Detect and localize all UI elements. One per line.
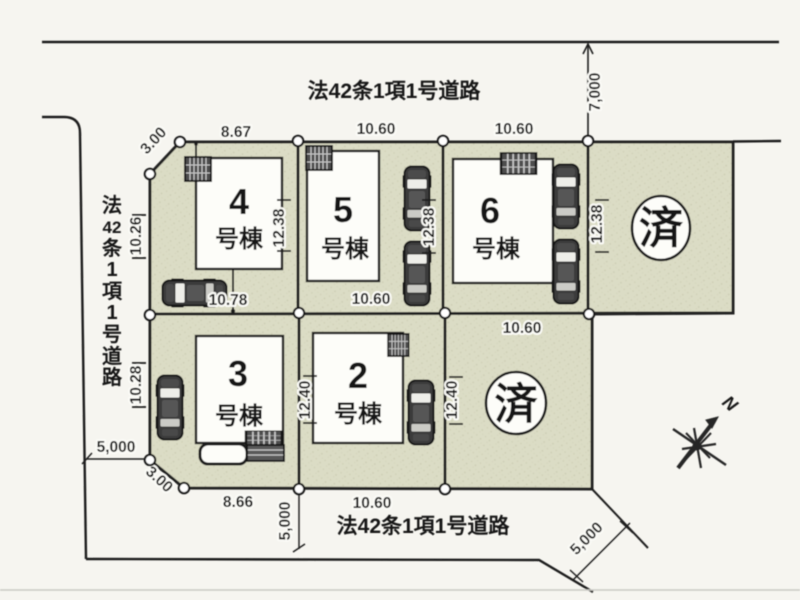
svg-text:8.66: 8.66 xyxy=(223,494,254,511)
svg-text:10.60: 10.60 xyxy=(353,495,392,512)
svg-text:8.67: 8.67 xyxy=(221,124,251,141)
svg-text:号棟: 号棟 xyxy=(215,226,264,253)
svg-text:12.38: 12.38 xyxy=(271,208,288,247)
svg-text:済: 済 xyxy=(639,204,684,253)
svg-text:条: 条 xyxy=(102,236,123,260)
svg-text:3: 3 xyxy=(228,353,248,394)
svg-text:号棟: 号棟 xyxy=(321,236,370,263)
svg-text:10.78: 10.78 xyxy=(209,292,248,309)
svg-text:10.60: 10.60 xyxy=(503,320,542,337)
svg-text:12.38: 12.38 xyxy=(421,207,438,246)
svg-text:号棟: 号棟 xyxy=(215,403,264,430)
svg-text:10.28: 10.28 xyxy=(128,365,145,404)
svg-text:路: 路 xyxy=(102,365,123,389)
svg-text:6: 6 xyxy=(480,190,500,231)
svg-text:1: 1 xyxy=(106,259,117,281)
svg-text:10.60: 10.60 xyxy=(352,291,391,308)
svg-text:10.26: 10.26 xyxy=(128,216,145,255)
svg-text:5: 5 xyxy=(333,189,353,230)
svg-text:5,000: 5,000 xyxy=(277,502,294,541)
svg-text:1: 1 xyxy=(106,302,117,324)
svg-text:12.38: 12.38 xyxy=(589,204,606,243)
svg-text:号棟: 号棟 xyxy=(472,236,521,263)
svg-text:7,000: 7,000 xyxy=(587,73,604,112)
svg-text:項: 項 xyxy=(102,281,123,303)
svg-text:12.40: 12.40 xyxy=(297,381,314,420)
svg-text:10.60: 10.60 xyxy=(495,121,534,138)
svg-text:10.60: 10.60 xyxy=(357,121,396,138)
svg-text:42: 42 xyxy=(103,218,122,237)
svg-text:5,000: 5,000 xyxy=(97,439,136,456)
svg-text:号: 号 xyxy=(102,323,122,346)
svg-text:号棟: 号棟 xyxy=(334,401,383,428)
svg-text:12.40: 12.40 xyxy=(444,381,461,420)
svg-text:道: 道 xyxy=(102,344,122,368)
svg-text:2: 2 xyxy=(348,355,368,396)
svg-text:法: 法 xyxy=(102,193,122,217)
svg-text:法42条1項1号道路: 法42条1項1号道路 xyxy=(337,514,511,538)
svg-text:済: 済 xyxy=(495,381,539,429)
svg-text:4: 4 xyxy=(229,181,249,222)
svg-text:法42条1項1号道路: 法42条1項1号道路 xyxy=(308,79,482,103)
